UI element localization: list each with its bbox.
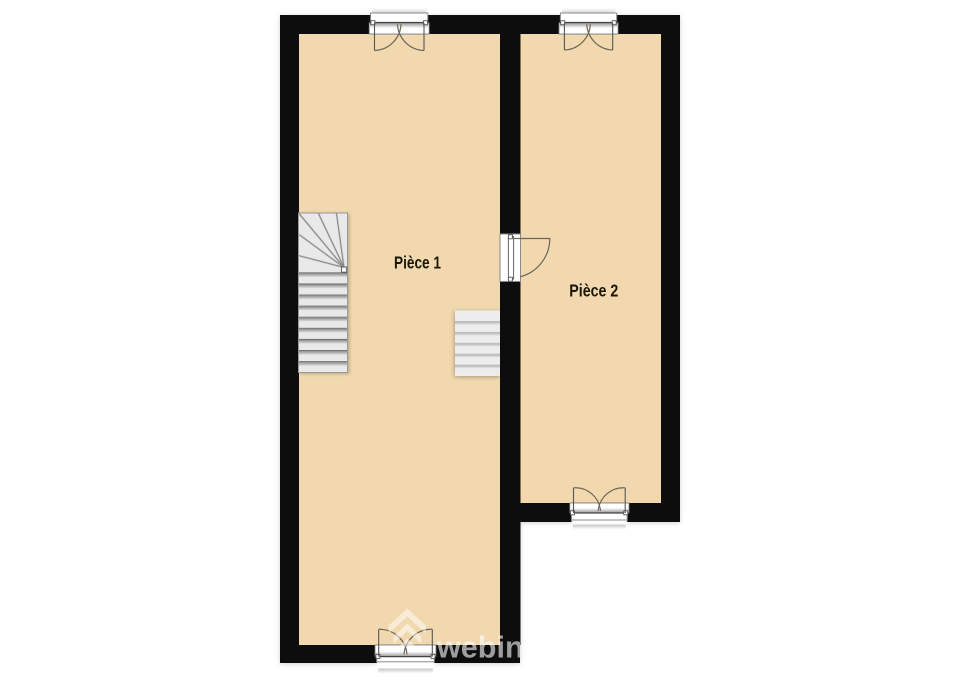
svg-text:webin: webin <box>436 631 524 665</box>
svg-text:Pièce 1: Pièce 1 <box>394 253 441 273</box>
svg-text:Pièce 2: Pièce 2 <box>569 281 618 301</box>
